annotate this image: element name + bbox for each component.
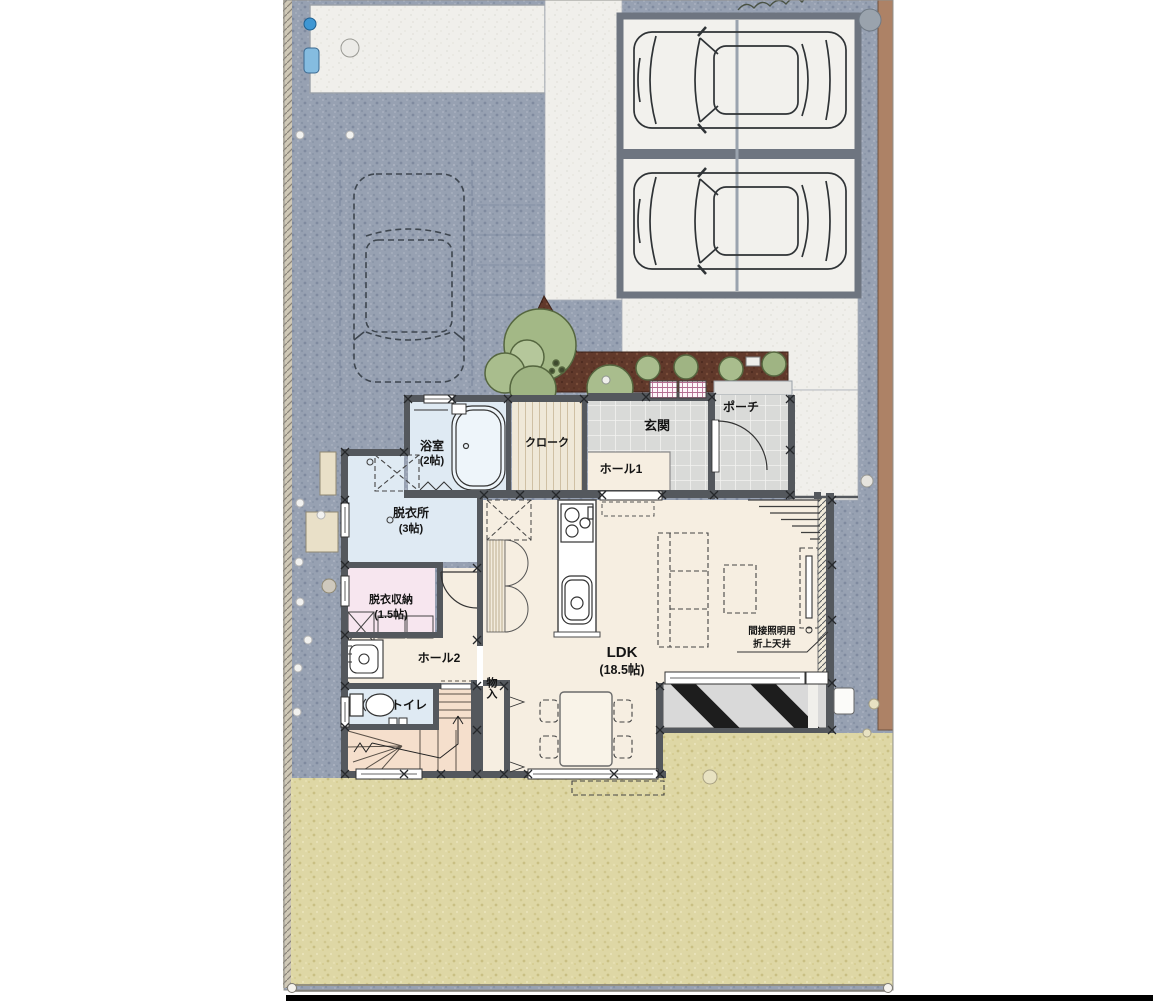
pantry-shelves — [487, 540, 505, 632]
manhole-icon — [322, 579, 336, 593]
room-size-ldk: (18.5帖) — [599, 662, 644, 677]
dining-table — [560, 692, 612, 766]
water-meter-icon — [304, 18, 316, 30]
stove-icon — [561, 504, 593, 542]
annotation-indirect-lighting-1: 間接照明用 — [748, 625, 796, 637]
room-label-storage: 物入 — [485, 676, 498, 700]
approach-front-of-porch — [790, 390, 858, 500]
room-label-toilet: トイレ — [391, 698, 427, 712]
counter-base — [554, 632, 600, 637]
shrub-icon — [674, 355, 698, 379]
room-label-hall1: ホール1 — [600, 462, 643, 476]
shrub-icon — [762, 352, 786, 376]
parking-stall-divider — [620, 149, 858, 159]
outdoor-equipment — [320, 452, 336, 495]
floor-plan-page: 浴室 (2帖) クローク 玄関 ポーチ ホール1 脱衣所 (3帖) 脱衣収納 (… — [0, 0, 1153, 1001]
room-label-bath: 浴室 — [420, 438, 444, 453]
shrub-icon — [719, 357, 743, 381]
room-label-genkan: 玄関 — [644, 418, 670, 433]
water-faucet-icon — [304, 48, 319, 73]
room-label-hall2: ホール2 — [418, 651, 461, 665]
room-size-dressing: (3帖) — [399, 521, 424, 535]
annotation-indirect-lighting-2: 折上天井 — [753, 638, 792, 650]
site-and-floor-plan-drawing: 浴室 (2帖) クローク 玄関 ポーチ ホール1 脱衣所 (3帖) 脱衣収納 (… — [0, 0, 1153, 1001]
manhole-icon — [341, 39, 359, 57]
room-label-dressing-storage: 脱衣収納 — [369, 592, 413, 606]
room-label-ldk: LDK — [607, 644, 638, 661]
shrub-icon — [636, 356, 660, 380]
floor-plan: 浴室 (2帖) クローク 玄関 ポーチ ホール1 脱衣所 (3帖) 脱衣収納 (… — [341, 381, 858, 795]
gate-post — [814, 492, 821, 499]
porch-step — [714, 381, 792, 395]
sink-icon — [562, 576, 592, 624]
room-label-cloak: クローク — [525, 436, 569, 449]
walkway — [545, 0, 622, 300]
manhole-icon — [861, 475, 873, 487]
stepping-stone — [602, 376, 610, 384]
tv-icon — [806, 556, 812, 618]
vanity-icon — [345, 640, 383, 678]
room-label-porch: ポーチ — [723, 399, 759, 414]
room-size-bath: (2帖) — [420, 453, 445, 467]
east-boundary-strip — [878, 0, 893, 730]
lattice-window — [679, 381, 706, 398]
room-size-dressing-storage: (1.5帖) — [374, 607, 408, 621]
parking-area — [620, 16, 858, 295]
ac-outdoor-unit — [834, 688, 854, 714]
stepping-stone — [746, 357, 760, 366]
tree-icon — [859, 9, 881, 31]
room-label-dressing: 脱衣所 — [393, 505, 429, 520]
entry-door-leaf — [712, 420, 719, 472]
lattice-window — [650, 381, 677, 398]
page-edge-bar — [286, 995, 1153, 1001]
